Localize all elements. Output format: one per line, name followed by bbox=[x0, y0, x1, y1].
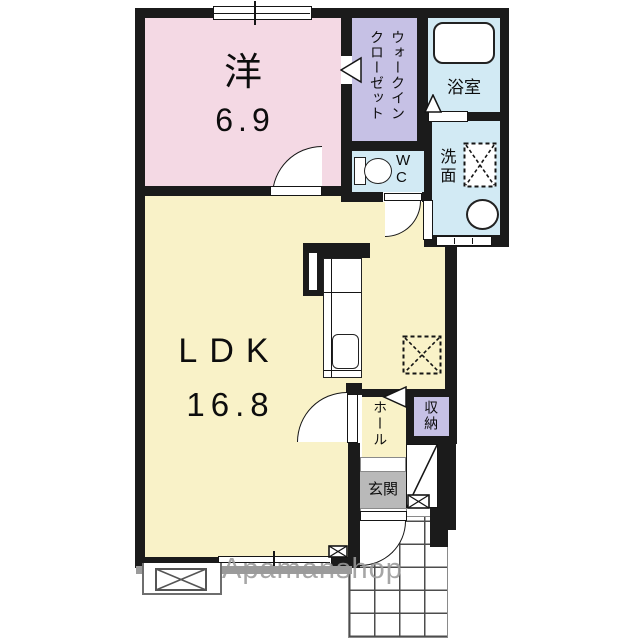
door-leaf-western bbox=[270, 186, 322, 196]
label-walk-in-closet: ウォークインクローゼット bbox=[366, 30, 408, 122]
wall-ldk-hall-lower bbox=[348, 443, 360, 568]
toilet-bowl bbox=[364, 158, 392, 184]
wall-left bbox=[135, 8, 145, 568]
label-hall: ホール bbox=[372, 400, 388, 456]
kitchen-counter-divider-line bbox=[324, 292, 361, 293]
door-leaf-entrance bbox=[360, 511, 407, 521]
wic-opening-arrow bbox=[340, 56, 362, 84]
window-western-midline bbox=[214, 13, 310, 14]
wall-top bbox=[135, 8, 509, 18]
label-washroom: 洗面 bbox=[436, 148, 454, 218]
floor-plan: 洋 6.9 ウォークインクローゼット 浴室 WC 洗面 LDK 16.8 ホール… bbox=[0, 0, 640, 640]
wall-wic-bottom bbox=[341, 141, 432, 151]
door-washroom-sliding bbox=[436, 236, 492, 246]
wall-kitchen-right-outer bbox=[445, 235, 457, 397]
label-bathroom: 浴室 bbox=[428, 78, 500, 98]
kitchen-counter-bottom-line bbox=[324, 370, 361, 371]
door-leaf-ldk-hall bbox=[347, 394, 358, 443]
label-storage: 収納 bbox=[423, 400, 439, 436]
label-toilet: WC bbox=[396, 152, 412, 186]
label-western-size: 6.9 bbox=[195, 102, 295, 139]
label-western-room: 洋 bbox=[203, 52, 283, 96]
label-entrance: 玄関 bbox=[361, 481, 405, 498]
wall-porch-right-stub bbox=[430, 506, 448, 547]
kitchen-sink bbox=[332, 334, 359, 369]
door-washroom-side bbox=[423, 200, 433, 240]
door-washroom-sliding-tick2 bbox=[472, 238, 473, 244]
window-western-tick bbox=[254, 1, 256, 25]
watermark: Apamanshop bbox=[222, 553, 442, 586]
wash-basin bbox=[466, 199, 499, 230]
washer-space bbox=[463, 142, 497, 188]
bathtub bbox=[433, 22, 495, 64]
refrigerator-space bbox=[402, 335, 442, 375]
vent-box-entrance bbox=[407, 494, 430, 509]
window-western-top bbox=[213, 6, 312, 20]
door-washroom-sliding-tick1 bbox=[454, 238, 455, 244]
door-leaf-wc bbox=[384, 193, 422, 201]
entrance-step-upper bbox=[360, 457, 406, 472]
label-ldk: LDK bbox=[152, 332, 307, 371]
ac-unit-box bbox=[155, 568, 207, 591]
wall-right-outer bbox=[500, 8, 509, 247]
label-ldk-size: 16.8 bbox=[148, 386, 313, 424]
kitchen-wall-slit bbox=[309, 253, 317, 290]
